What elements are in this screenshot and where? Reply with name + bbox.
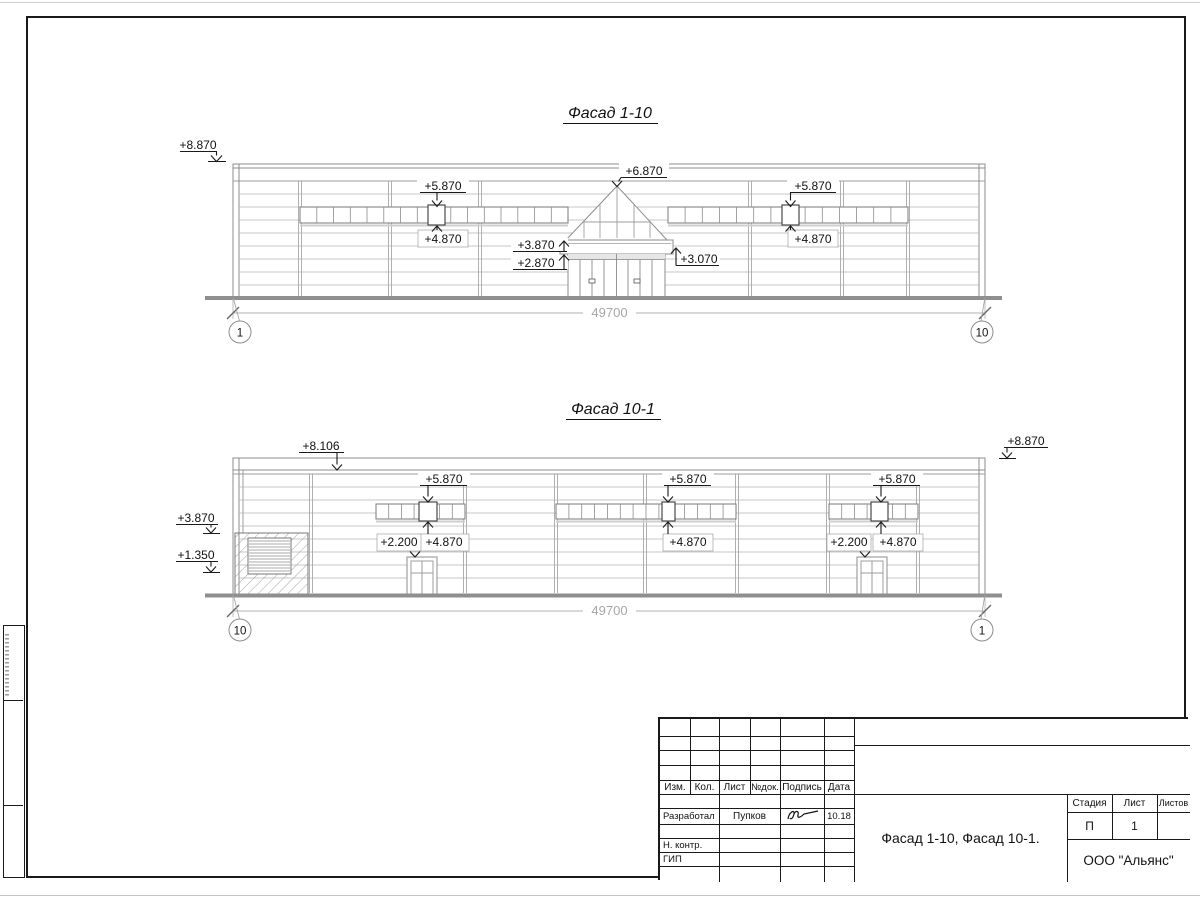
col-header-ndok: №док. — [750, 780, 780, 794]
col-header-kol: Кол. — [690, 780, 719, 794]
col-header-sheets: Листов — [1157, 794, 1190, 812]
signature-mark — [782, 806, 822, 824]
col-header-sheet: Лист — [1112, 794, 1157, 812]
stage-value: П — [1067, 812, 1112, 839]
razrabotal-date: 10.18 — [824, 808, 854, 824]
row-label-razrabotal: Разработал — [660, 808, 722, 824]
col-header-podpis: Подпись — [780, 780, 824, 794]
col-header-list: Лист — [719, 780, 750, 794]
col-header-data: Дата — [824, 780, 854, 794]
company-name: ООО "Альянс" — [1067, 839, 1190, 882]
col-header-stadiya: Стадия — [1067, 794, 1112, 812]
col-header-izm: Изм. — [660, 780, 690, 794]
document-title: Фасад 1-10, Фасад 10-1. — [854, 794, 1067, 882]
side-stamp-clipped-text — [5, 634, 9, 696]
row-label-nkontr: Н. контр. — [660, 838, 722, 852]
sheet-value: 1 — [1112, 812, 1157, 839]
title-block: Изм. Кол. Лист №док. Подпись Дата Разраб… — [658, 717, 1188, 880]
side-stamp — [3, 625, 25, 878]
razrabotal-name: Пупков — [719, 808, 780, 824]
row-label-gip: ГИП — [660, 852, 722, 866]
